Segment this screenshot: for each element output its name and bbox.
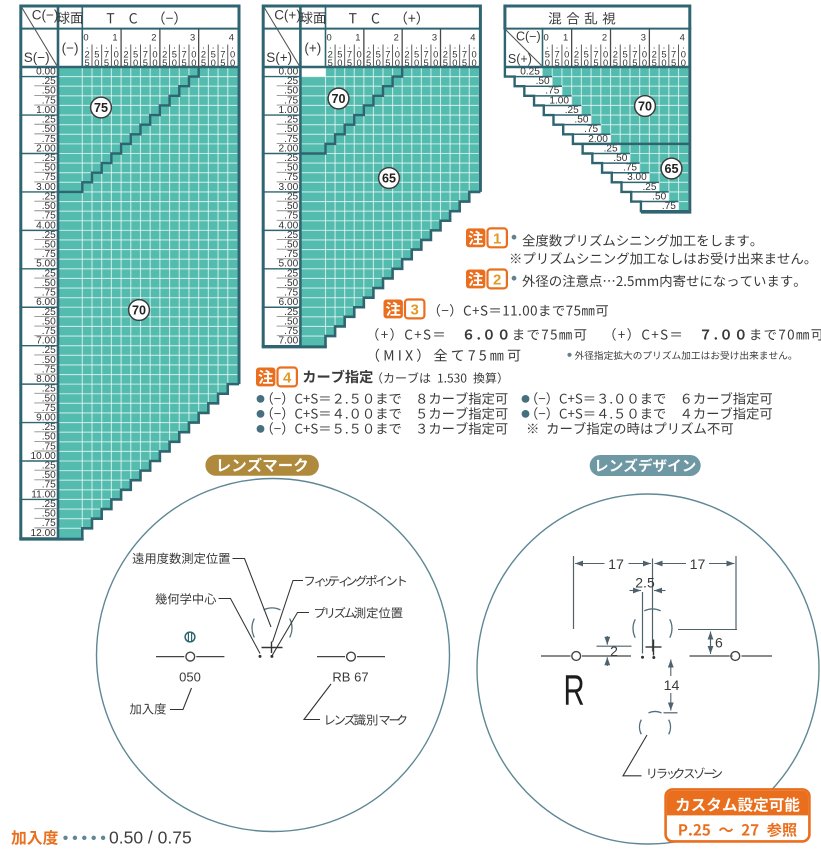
svg-text:C(−): C(−) <box>32 8 59 23</box>
svg-text:5: 5 <box>328 57 333 68</box>
svg-text:70: 70 <box>638 99 652 113</box>
svg-text:65: 65 <box>382 171 396 185</box>
svg-text:5: 5 <box>201 57 206 68</box>
svg-text:5: 5 <box>143 57 148 68</box>
svg-text:(+): (+) <box>304 41 321 56</box>
svg-text:70: 70 <box>132 303 146 317</box>
svg-text:0: 0 <box>172 57 177 68</box>
svg-text:5: 5 <box>385 57 390 68</box>
svg-text:5: 5 <box>366 57 371 68</box>
svg-text:0: 0 <box>603 57 608 68</box>
svg-text:17: 17 <box>690 557 706 573</box>
svg-text:0: 0 <box>642 57 647 68</box>
svg-text:0: 0 <box>395 57 400 68</box>
svg-text:0: 0 <box>584 57 589 68</box>
svg-text:12.00: 12.00 <box>31 528 57 539</box>
svg-text:0: 0 <box>661 57 666 68</box>
svg-text:70: 70 <box>331 92 345 106</box>
svg-text:S(−): S(−) <box>24 50 50 65</box>
svg-text:5: 5 <box>462 57 467 68</box>
svg-text:0: 0 <box>622 57 627 68</box>
svg-text:2: 2 <box>493 272 501 289</box>
svg-text:5: 5 <box>554 57 559 68</box>
svg-text:0: 0 <box>452 57 457 68</box>
svg-text:4: 4 <box>283 370 292 387</box>
svg-text:S(+): S(+) <box>508 52 532 66</box>
svg-text:050: 050 <box>179 670 201 685</box>
svg-text:0: 0 <box>211 57 216 68</box>
svg-text:0: 0 <box>230 57 235 68</box>
svg-text:0: 0 <box>433 57 438 68</box>
svg-text:RB 67: RB 67 <box>332 670 368 685</box>
svg-text:0: 0 <box>376 57 381 68</box>
svg-text:0: 0 <box>152 57 157 68</box>
svg-text:5: 5 <box>574 57 579 68</box>
svg-text:0: 0 <box>337 57 342 68</box>
svg-text:5: 5 <box>632 57 637 68</box>
svg-text:5: 5 <box>404 57 409 68</box>
svg-text:0: 0 <box>471 57 476 68</box>
svg-text:0: 0 <box>191 57 196 68</box>
svg-text:0: 0 <box>133 57 138 68</box>
svg-text:C(−): C(−) <box>516 30 541 44</box>
svg-text:0: 0 <box>94 57 99 68</box>
svg-text:0: 0 <box>545 57 550 68</box>
svg-text:5: 5 <box>220 57 225 68</box>
svg-text:5: 5 <box>85 57 90 68</box>
svg-text:5: 5 <box>162 57 167 68</box>
svg-text:0: 0 <box>114 57 119 68</box>
svg-text:C(+): C(+) <box>274 8 301 23</box>
svg-text:3: 3 <box>411 302 419 319</box>
svg-text:0: 0 <box>356 57 361 68</box>
svg-text:17: 17 <box>608 557 624 573</box>
svg-text:5: 5 <box>593 57 598 68</box>
svg-text:5: 5 <box>104 57 109 68</box>
svg-text:0: 0 <box>681 57 686 68</box>
svg-text:(−): (−) <box>62 41 79 56</box>
svg-text:5: 5 <box>347 57 352 68</box>
svg-text:S(+): S(+) <box>266 50 292 65</box>
svg-text:6: 6 <box>715 635 723 651</box>
svg-text:5: 5 <box>652 57 657 68</box>
svg-text:R: R <box>564 666 585 714</box>
svg-text:0: 0 <box>564 57 569 68</box>
svg-text:0.50 / 0.75: 0.50 / 0.75 <box>109 828 192 848</box>
svg-text:5: 5 <box>182 57 187 68</box>
svg-text:5: 5 <box>613 57 618 68</box>
svg-text:5: 5 <box>424 57 429 68</box>
svg-text:5: 5 <box>123 57 128 68</box>
svg-text:2.5: 2.5 <box>635 575 655 591</box>
svg-text:7.00: 7.00 <box>279 336 299 347</box>
svg-text:65: 65 <box>664 162 678 176</box>
svg-text:5: 5 <box>671 57 676 68</box>
svg-text:1: 1 <box>493 231 501 248</box>
svg-text:14: 14 <box>664 678 680 694</box>
svg-text:0: 0 <box>414 57 419 68</box>
svg-text:75: 75 <box>94 101 108 115</box>
svg-text:5: 5 <box>443 57 448 68</box>
